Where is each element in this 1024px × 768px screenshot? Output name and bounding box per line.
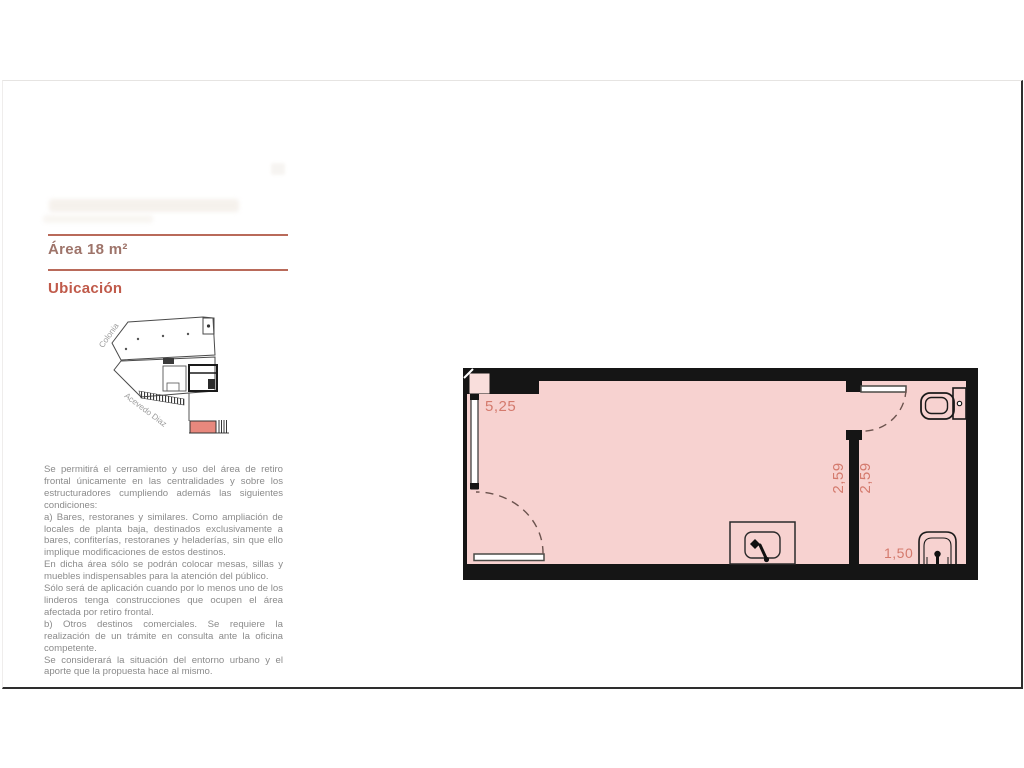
- location-heading: Ubicación: [48, 280, 288, 297]
- regulation-paragraph: Se considerará la situación del entorno …: [44, 655, 283, 679]
- divider-line-bottom: [48, 269, 288, 271]
- unit-highlight: [190, 421, 216, 433]
- regulation-paragraph: En dicha área sólo se podrán colocar mes…: [44, 559, 283, 583]
- dimension-front-width: 5,25: [485, 398, 516, 415]
- dimension-room-depth: 2,59: [830, 462, 847, 493]
- dimension-bath-width: 1,50: [884, 545, 913, 561]
- partition-end-cap: [846, 430, 862, 440]
- entry-door-leaf: [474, 554, 544, 561]
- left-wall: [463, 368, 467, 580]
- regulation-paragraph: Sólo será de aplicación cuando por lo me…: [44, 583, 283, 619]
- door-jamb-stub: [846, 381, 862, 392]
- wall-duct-niche: [470, 374, 490, 394]
- regulation-paragraph: Se permitirá el cerramiento y uso del ár…: [44, 464, 283, 512]
- stair-symbol: [219, 420, 227, 433]
- faded-mark: [271, 163, 285, 175]
- top-wall: [463, 368, 978, 381]
- partition-wall: [849, 432, 859, 564]
- regulation-paragraph: b) Otros destinos comerciales. Se requie…: [44, 619, 283, 655]
- site-location-map: Colonia Acevedo Diaz: [93, 309, 253, 444]
- floor-plan: 5,25 2,59 2,59 1,50: [463, 368, 978, 580]
- faded-text-line: [43, 215, 153, 223]
- regulation-paragraph: a) Bares, restoranes y similares. Como a…: [44, 512, 283, 560]
- building-wing: [189, 393, 229, 433]
- bath-door-leaf: [861, 386, 906, 392]
- area-title: Área 18 m²: [48, 241, 288, 258]
- glass-front: [470, 394, 479, 489]
- regulations-text: Se permitirá el cerramiento y uso del ár…: [44, 464, 283, 678]
- right-wall: [966, 368, 978, 580]
- faded-text-artifact: [43, 181, 273, 226]
- dimension-bath-depth: 2,59: [857, 462, 874, 493]
- faded-text-line: [49, 199, 239, 212]
- bottom-wall: [463, 564, 978, 580]
- divider-line-top: [48, 234, 288, 236]
- building-upper-block: [112, 317, 215, 360]
- document-page: Área 18 m² Ubicación: [2, 80, 1023, 689]
